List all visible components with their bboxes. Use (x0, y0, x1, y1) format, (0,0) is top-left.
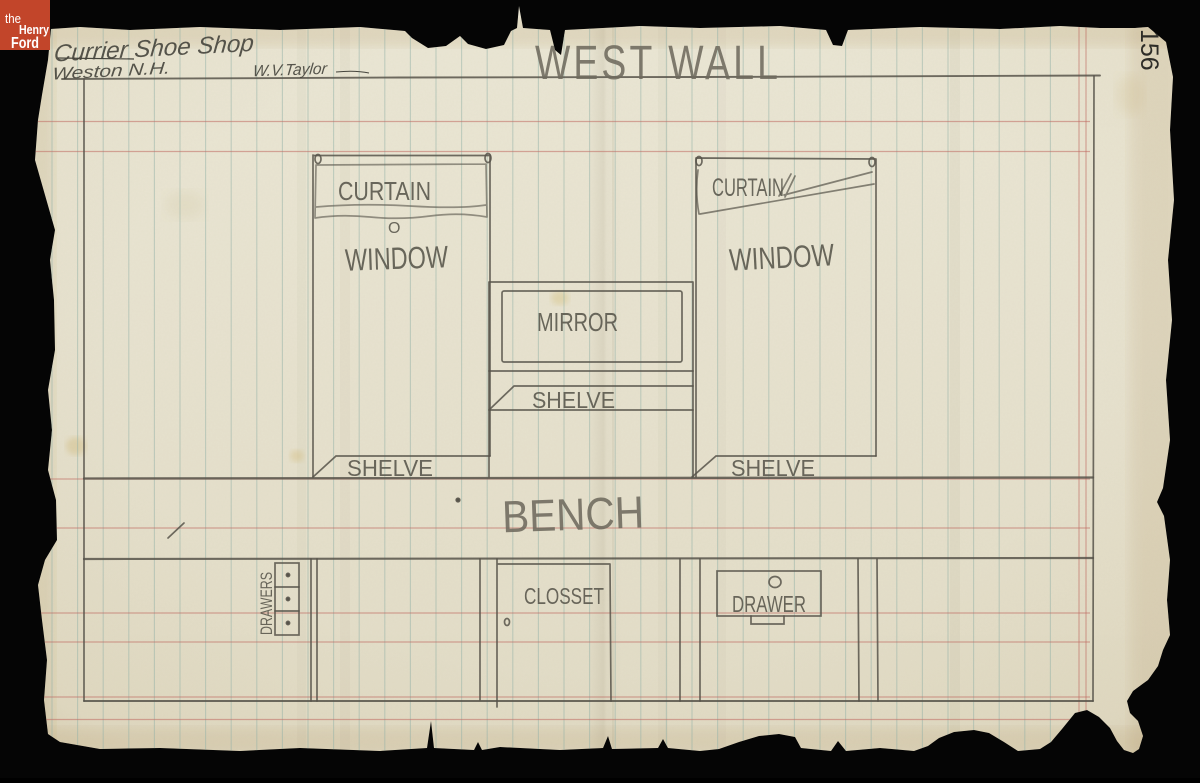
svg-text:Ford: Ford (11, 35, 39, 52)
svg-text:CLOSSET: CLOSSET (524, 583, 604, 609)
svg-text:WINDOW: WINDOW (344, 239, 449, 278)
svg-text:MIRROR: MIRROR (537, 307, 618, 337)
svg-text:CURTAIN: CURTAIN (712, 174, 784, 202)
svg-text:O: O (388, 220, 400, 237)
svg-text:BENCH: BENCH (501, 486, 645, 542)
svg-text:W.V.Taylor: W.V.Taylor (252, 60, 328, 81)
svg-text:DRAWERS: DRAWERS (257, 572, 276, 635)
svg-text:WEST WALL: WEST WALL (535, 37, 781, 90)
svg-text:CURTAIN: CURTAIN (338, 176, 431, 206)
svg-text:SHELVE: SHELVE (347, 455, 433, 481)
svg-text:WINDOW: WINDOW (728, 237, 835, 277)
svg-text:SHELVE: SHELVE (731, 455, 815, 481)
svg-text:DRAWER: DRAWER (732, 591, 806, 617)
svg-text:SHELVE: SHELVE (532, 387, 615, 413)
